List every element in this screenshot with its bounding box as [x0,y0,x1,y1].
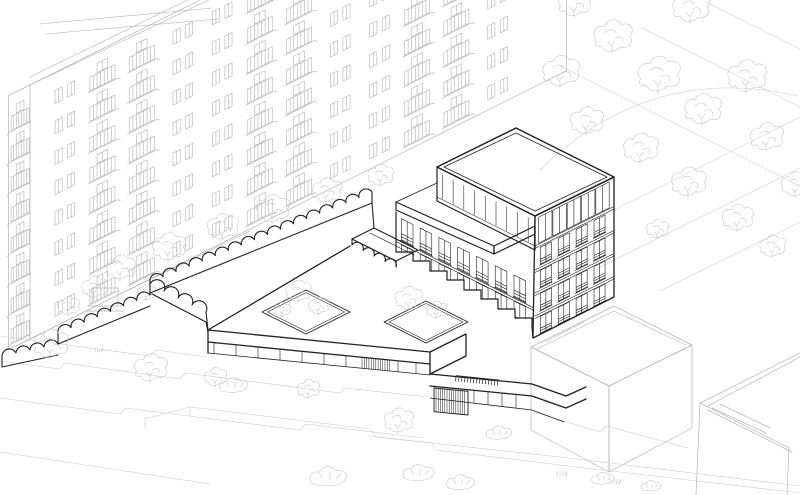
window-pair [330,34,350,57]
window-pair [330,65,350,88]
window [438,263,451,292]
bush [403,464,434,480]
tree [368,164,394,187]
balcony [442,57,474,100]
plaza-paving-line [660,222,800,291]
window [540,310,553,334]
window-pair [330,95,350,118]
tree [722,204,753,232]
window-pair [173,52,193,75]
window-pair [212,184,232,207]
window [494,291,507,320]
window [557,255,570,279]
lower-ground [430,398,564,422]
balcony [127,123,159,166]
tree [610,478,621,484]
tree [543,55,580,88]
window-pair [330,4,350,27]
window-pair [55,202,75,225]
street-wall [370,436,800,493]
drawing-canvas [0,0,800,495]
balcony [88,143,120,186]
window-pair [370,45,390,68]
roof-A-detail [537,311,686,349]
balcony [245,156,277,199]
balcony [245,0,277,16]
courtyard-trees [274,280,446,319]
wall-body-main [150,192,372,295]
wall-body-mid [58,306,150,344]
window-pair [488,0,508,9]
tree [556,470,567,476]
tree [638,56,680,94]
curved-path [540,88,798,170]
window-pair [173,143,193,166]
roof-parapet-inner [444,133,607,211]
tree [728,60,767,94]
tree [152,233,185,262]
tree [685,93,722,126]
balcony [245,186,277,229]
tree [594,20,633,54]
window-pair [370,136,390,159]
bush [592,472,615,484]
plaza-paving-line [706,2,800,49]
balcony [127,184,159,227]
tree [558,0,591,18]
window [540,264,553,288]
window-pair [488,77,508,100]
window [457,298,470,327]
bush [641,481,661,491]
balcony [285,0,317,27]
window [400,270,413,299]
balcony [88,204,120,247]
window [575,292,588,316]
terrain-contour [0,361,428,397]
window-pair [173,22,193,45]
window-pair [55,172,75,195]
balcony [88,173,120,216]
balcony [88,82,120,125]
window [593,261,606,285]
window [557,278,570,302]
canopy-scallops [352,242,396,267]
neighbouring-buildings [531,306,800,495]
gable-balcony [7,188,30,227]
gable-balcony [7,127,30,166]
gable-balcony [7,310,30,349]
tree [106,255,135,281]
gable-balcony [7,158,30,197]
window [419,228,432,257]
tree [205,367,227,387]
balcony [442,0,474,40]
balcony [285,106,317,149]
window [476,308,489,337]
window [476,334,489,363]
balcony [88,113,120,156]
balcony [245,4,277,47]
window [457,324,470,353]
wall-scallops-main [150,189,372,282]
roof-A [531,306,692,386]
face-A-left [531,347,609,472]
gable-balcony [7,249,30,288]
shopfront-mullions [214,343,516,408]
louvre-panel-2 [436,389,465,415]
balcony [127,63,159,106]
balcony [403,16,435,59]
sw-stepped-base [396,212,533,338]
tree [624,133,659,164]
terraced-ground [0,336,688,484]
window-pair [330,125,350,148]
se-facade-grid [535,180,614,337]
window [593,284,606,308]
balcony [285,45,317,88]
window-pair [55,141,75,164]
face-A-right [609,345,692,472]
window [513,327,526,356]
window [419,306,432,335]
slab-roof-edges [30,0,218,85]
window [513,353,526,382]
window-pair [55,111,75,134]
window-pair [212,93,232,116]
gable-balcony [7,218,30,257]
proposed-tower [396,128,614,389]
window-pair [55,81,75,104]
window-pair [488,47,508,70]
balcony [88,52,120,95]
window [513,275,526,304]
window [476,282,489,311]
tree [286,280,312,303]
balcony [442,27,474,70]
window-pair [488,16,508,39]
window [557,301,570,325]
axonometric-drawing [0,0,800,495]
plaza-paving-line [598,168,800,268]
window-pair [370,15,390,38]
window-pair [212,124,232,147]
tree [384,408,413,434]
window [494,343,507,372]
courtyard-opening [262,290,350,334]
tree [134,354,167,383]
balcony [285,75,317,118]
window-pair [370,106,390,129]
window [476,256,489,285]
window-pair [330,156,350,179]
gable-balcony [7,279,30,318]
balcony [88,265,120,308]
balcony [127,245,159,288]
lower-roof-fill [430,340,586,396]
scalloped-canopy [352,203,418,267]
bush [447,475,475,490]
window [494,317,507,346]
balcony [285,14,317,57]
tree [672,167,707,198]
balcony [285,136,317,179]
balcony [403,107,435,150]
tree [647,219,669,239]
window-pair [173,204,193,227]
slab-gable-end [7,85,30,351]
window [540,287,553,311]
roof-step [430,334,466,374]
podium-with-courtyards [208,238,586,422]
plaza-paving-line [642,28,800,107]
balcony [403,77,435,120]
window-pair [55,233,75,256]
window [438,237,451,266]
balcony [245,64,277,107]
window [419,254,432,283]
window-pair [173,234,193,257]
window-pair [173,113,193,136]
bush [486,426,512,439]
tree [750,123,783,152]
window [457,246,470,275]
wall-body-branch [152,294,208,332]
balcony [245,125,277,168]
tree [673,0,710,24]
courtyard-opening [384,301,468,343]
window-pair [370,75,390,98]
street-retaining-walls [145,407,800,493]
window [593,238,606,262]
courtyard-rim [389,304,463,341]
tree [760,235,786,258]
terrace-edges [396,167,437,210]
balcony [403,47,435,90]
window-pair [212,154,232,177]
terrain-contour [0,452,210,484]
window-pair [173,82,193,105]
bush [310,467,347,486]
window [575,269,588,293]
window-pair [212,32,232,55]
balcony [127,215,159,258]
window-pair [212,2,232,25]
street-wall [145,407,800,486]
tree-park [540,0,800,291]
gable-balcony [7,97,30,136]
window [400,244,413,273]
balcony [127,32,159,75]
window-pair [370,0,390,7]
roof-B [696,353,800,495]
balcony [245,95,277,138]
balcony [245,34,277,77]
balcony [442,88,474,131]
courtyard-rim [267,293,344,332]
bush [220,378,248,393]
window-pair [173,174,193,197]
balcony [127,93,159,136]
window [494,265,507,294]
window [575,246,588,270]
balcony [88,234,120,277]
balcony [127,154,159,197]
terrain-contour [0,398,424,438]
window-pair [55,263,75,286]
window [438,315,451,344]
window-pair [212,63,232,86]
shopfront-ground [208,353,430,375]
